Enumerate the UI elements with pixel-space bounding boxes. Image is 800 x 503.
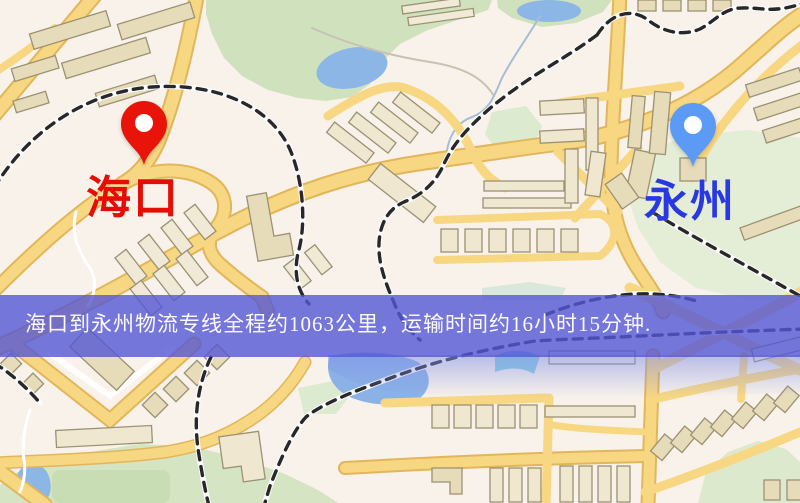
destination-label: 永州 — [644, 180, 736, 224]
map[interactable]: 海口 永州 海口到永州物流专线全程约1063公里，运输时间约16小时15分钟. — [0, 0, 800, 503]
water-wash — [328, 355, 800, 399]
route-info-text: 海口到永州物流专线全程约1063公里，运输时间约16小时15分钟. — [25, 308, 651, 344]
map-artwork — [0, 0, 800, 503]
route-info-banner: 海口到永州物流专线全程约1063公里，运输时间约16小时15分钟. — [0, 295, 800, 357]
origin-pin-icon[interactable] — [117, 100, 171, 166]
origin-label: 海口 — [86, 176, 180, 221]
destination-pin-icon[interactable] — [666, 102, 720, 168]
